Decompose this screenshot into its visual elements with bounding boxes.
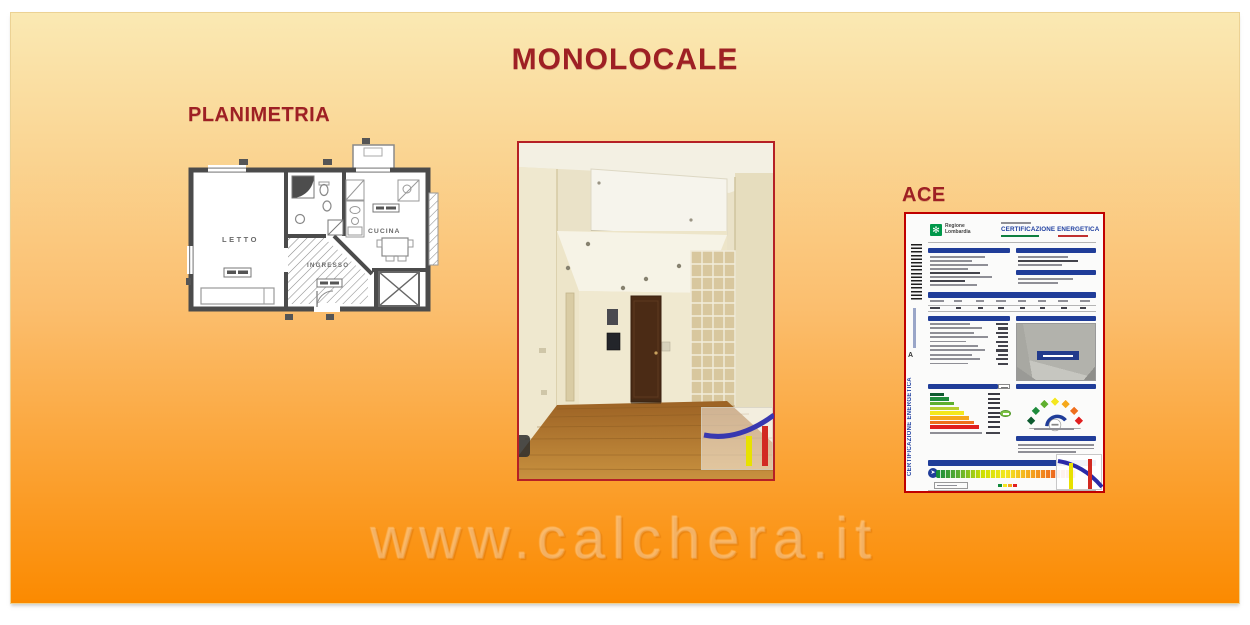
text-line — [1018, 448, 1094, 450]
text-line — [930, 432, 982, 434]
floorplan-label: PLANIMETRIA — [188, 104, 330, 127]
energy-class-header-bar — [928, 384, 998, 389]
ace-label: ACE — [902, 184, 946, 207]
text-line — [930, 264, 988, 266]
value-stub — [996, 323, 1008, 325]
value-stub — [996, 341, 1008, 343]
text-line — [930, 280, 965, 282]
text-line — [1018, 264, 1062, 266]
text-line — [1001, 222, 1031, 224]
table-cell — [1080, 300, 1090, 302]
side-logo-mark: A — [908, 352, 913, 359]
ace-certificate: A CERTIFICAZIONE ENERGETICA ✻ Regione Lo… — [904, 212, 1105, 493]
energy-class-bars — [930, 392, 1010, 430]
gauge-svg — [1020, 390, 1090, 432]
table-cell — [996, 300, 1006, 302]
divider — [928, 242, 1096, 243]
table-cell — [1040, 307, 1045, 309]
text-line — [930, 341, 966, 343]
text-line — [930, 363, 968, 365]
door-handle — [654, 351, 657, 354]
text-line — [1018, 282, 1058, 284]
section-header-bar — [928, 248, 1010, 253]
text-line — [930, 268, 968, 270]
gauge-header-bar — [1016, 384, 1096, 389]
left-wall — [519, 167, 557, 455]
yellow-bar — [746, 436, 752, 466]
red-bar — [762, 426, 768, 466]
value-stub — [996, 332, 1008, 334]
text-line — [930, 256, 985, 258]
gauge-detail-overlay — [1056, 454, 1102, 490]
section-header-bar — [1016, 436, 1096, 441]
text-line — [930, 349, 985, 351]
radiator — [566, 293, 574, 401]
map-label — [1037, 351, 1079, 360]
watermark: www.calchera.it — [11, 506, 1239, 573]
table-cell — [1080, 307, 1086, 309]
energy-class-bar — [930, 397, 949, 401]
text-line — [930, 327, 982, 329]
room-label-entrance: INGRESSO — [307, 262, 349, 269]
text-line — [1034, 428, 1074, 430]
energy-class-bar — [930, 407, 959, 411]
table-cell — [1061, 307, 1067, 309]
table-cell — [1020, 307, 1025, 309]
table-cell — [1018, 300, 1026, 302]
table-cell — [956, 307, 961, 309]
slide-background: MONOLOCALE PLANIMETRIA — [10, 12, 1240, 604]
section-header-bar — [1016, 248, 1096, 253]
section-header-bar — [1016, 270, 1096, 275]
room-label-kitchen: CUCINA — [368, 228, 400, 235]
table-cell — [1038, 300, 1046, 302]
text-line — [930, 354, 972, 356]
region-name: Regione Lombardia — [945, 223, 971, 235]
value-stub — [998, 327, 1008, 329]
red-underline — [1058, 235, 1088, 237]
gauge-detail-overlay — [701, 407, 773, 470]
unit-box — [998, 384, 1010, 389]
interior-photo — [517, 141, 775, 481]
text-line — [1018, 256, 1068, 258]
energy-class-bar — [930, 416, 969, 420]
value-stub — [998, 354, 1008, 356]
aerial-map — [1016, 323, 1096, 381]
legend-yellow — [1003, 484, 1007, 488]
legend-red — [1013, 484, 1017, 488]
text-line — [930, 345, 978, 347]
section-header-bar — [928, 316, 1010, 321]
text-line — [930, 284, 977, 286]
entrance-door — [631, 296, 661, 402]
section-header-bar — [1016, 316, 1096, 321]
side-vertical-title: CERTIFICAZIONE ENERGETICA — [907, 362, 917, 476]
text-line — [930, 336, 988, 338]
energy-class-marker — [1000, 410, 1011, 417]
text-line — [1018, 260, 1078, 262]
certificate-document: A CERTIFICAZIONE ENERGETICA ✻ Regione Lo… — [906, 214, 1103, 491]
text-line — [930, 260, 972, 262]
blue-arc — [1058, 461, 1102, 487]
table-cell — [978, 307, 983, 309]
energy-class-bar — [930, 421, 974, 425]
legend-orange — [1008, 484, 1012, 488]
text-line — [930, 272, 980, 274]
text-line — [930, 358, 980, 360]
legend-green — [998, 484, 1002, 488]
value-stub — [996, 358, 1008, 360]
divider — [928, 305, 1096, 306]
floorplan-image: LETTO CUCINA INGRESSO — [186, 138, 446, 323]
certificate-title: CERTIFICAZIONE ENERGETICA — [1001, 226, 1101, 233]
table-cell — [954, 300, 962, 302]
soffit-panel — [591, 169, 727, 235]
table-cell — [930, 307, 940, 309]
room-label-bedroom: LETTO — [222, 235, 259, 244]
regione-lombardia-logo: ✻ — [930, 224, 942, 236]
text-line — [1018, 451, 1076, 453]
glass-block-wall — [691, 251, 735, 409]
text-line — [1018, 278, 1073, 280]
table-cell — [1058, 300, 1068, 302]
green-underline — [1001, 235, 1039, 237]
energy-class-bar — [930, 393, 944, 397]
intercom — [607, 309, 618, 325]
text-line — [937, 485, 957, 487]
table-cell — [998, 307, 1004, 309]
barcode — [911, 244, 922, 300]
value-stub — [998, 363, 1008, 365]
value-stub — [998, 345, 1008, 347]
value-stub — [996, 349, 1008, 351]
energy-class-bar — [930, 411, 964, 415]
text-line — [930, 323, 970, 325]
page-title: MONOLOCALE — [11, 43, 1239, 77]
value-stub — [998, 336, 1008, 338]
text-line — [1018, 444, 1094, 446]
divider — [928, 311, 1096, 312]
text-line — [930, 276, 992, 278]
value-stub — [986, 432, 1000, 434]
slide-canvas: MONOLOCALE PLANIMETRIA — [0, 0, 1250, 625]
energy-class-bar — [930, 425, 979, 429]
table-cell — [930, 300, 944, 302]
energy-class-bar — [930, 402, 954, 406]
table-header-bar — [928, 292, 1096, 298]
side-text-lines — [913, 308, 916, 348]
table-cell — [976, 300, 984, 302]
yellow-bar — [1069, 463, 1073, 489]
text-line — [930, 332, 974, 334]
energy-gradient-strip — [936, 470, 1076, 478]
red-bar — [1088, 459, 1092, 489]
